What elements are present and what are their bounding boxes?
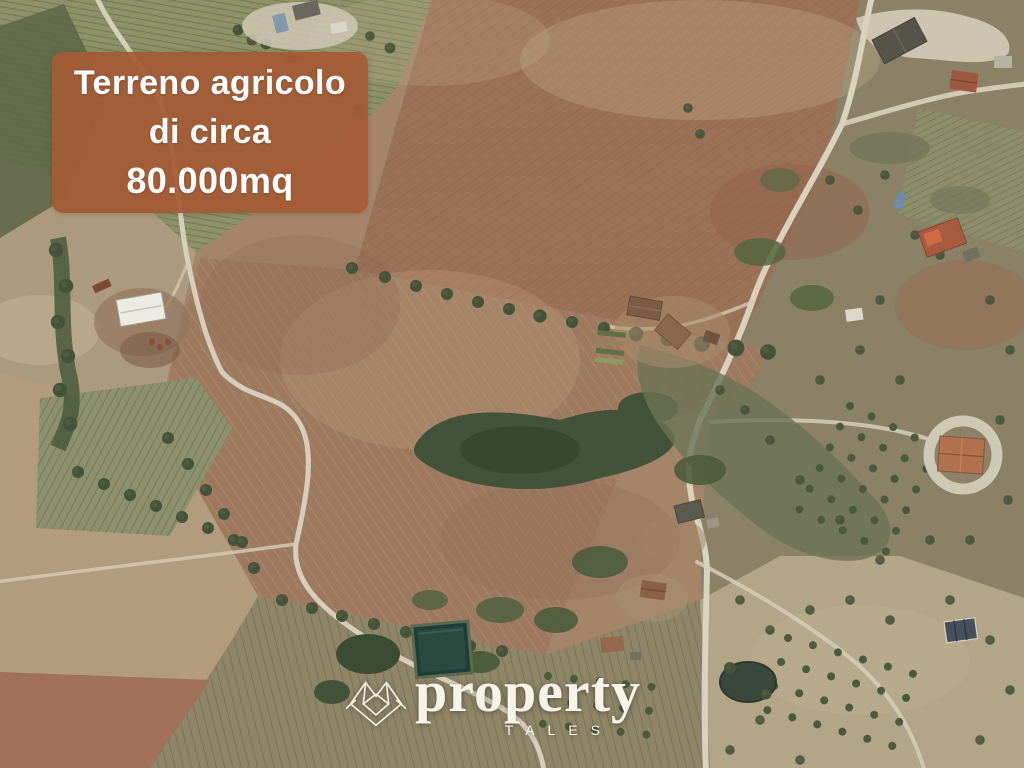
real-estate-listing-image: Terreno agricolo di circa 80.000mq prope… (0, 0, 1024, 768)
banner-line-1: Terreno agricolo (74, 66, 346, 100)
banner-line-2: di circa (149, 115, 271, 149)
logo-wordmark: property (415, 662, 641, 721)
land-size-banner: Terreno agricolo di circa 80.000mq (52, 52, 368, 213)
logo-text: property TALES (415, 662, 641, 738)
property-tales-logo: property TALES (346, 662, 641, 738)
banner-line-3: 80.000mq (126, 163, 293, 199)
folded-map-outline-icon (346, 670, 406, 732)
solar-panel-house (944, 618, 978, 643)
round-courtyard-villa (929, 421, 997, 489)
logo-subbrand: TALES (415, 722, 641, 738)
